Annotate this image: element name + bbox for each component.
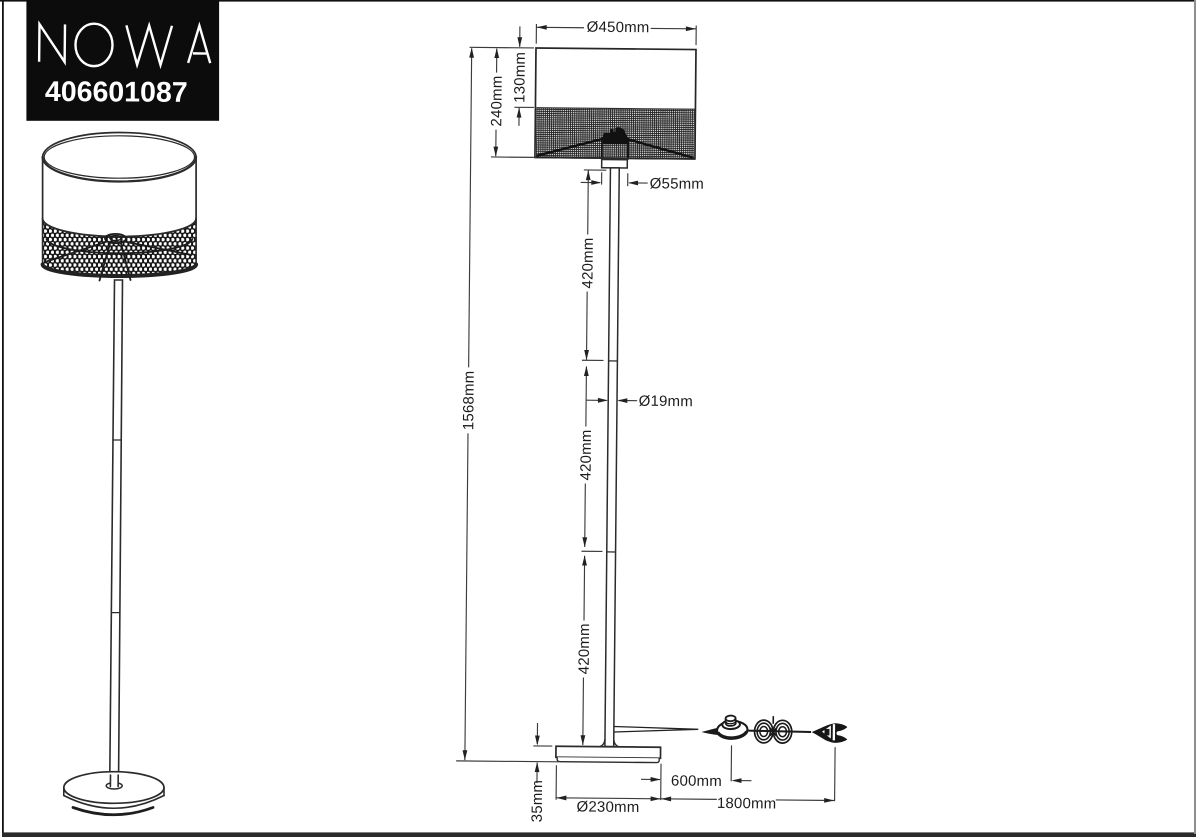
svg-text:Ø450mm: Ø450mm (587, 19, 650, 37)
svg-text:420mm: 420mm (579, 237, 596, 288)
svg-text:406601087: 406601087 (45, 76, 188, 109)
svg-text:240mm: 240mm (488, 75, 505, 126)
svg-text:Ø19mm: Ø19mm (639, 393, 694, 411)
svg-text:Ø230mm: Ø230mm (576, 798, 639, 816)
svg-text:Ø55mm: Ø55mm (650, 175, 705, 193)
svg-text:1800mm: 1800mm (717, 795, 777, 813)
svg-text:600mm: 600mm (671, 773, 722, 790)
svg-text:420mm: 420mm (576, 623, 593, 674)
svg-text:420mm: 420mm (578, 429, 595, 480)
svg-text:1568mm: 1568mm (460, 371, 478, 431)
svg-text:130mm: 130mm (511, 52, 528, 103)
svg-text:35mm: 35mm (529, 780, 546, 823)
